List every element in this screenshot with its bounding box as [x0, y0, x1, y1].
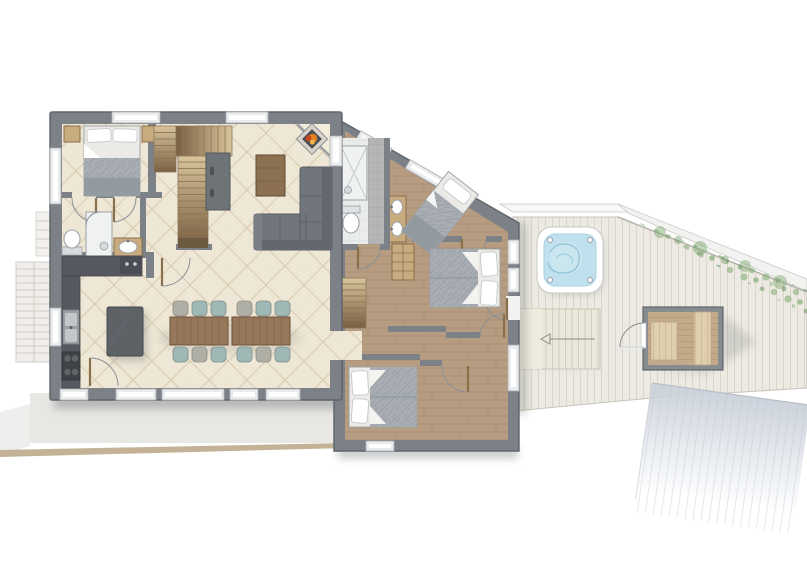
sideboard — [256, 155, 285, 196]
dining-chair — [173, 347, 188, 362]
master-bed — [84, 126, 140, 196]
window — [112, 112, 160, 123]
shower-head-icon — [100, 242, 108, 250]
deck — [500, 204, 807, 534]
main-building — [50, 112, 342, 400]
dining-chair — [237, 301, 252, 316]
hot-tub-jet — [588, 238, 593, 243]
window — [226, 112, 268, 123]
hot-tub-jet — [588, 278, 593, 283]
floor-plan-drawing — [0, 0, 807, 575]
bathroom-sink — [114, 238, 142, 256]
hot-tub — [537, 227, 603, 293]
window — [162, 389, 224, 400]
bathroom-floor-gray — [368, 138, 384, 244]
bed-double-lower — [349, 367, 417, 427]
window — [266, 389, 300, 400]
dining-table — [170, 317, 228, 345]
window — [508, 345, 519, 391]
stair-landing — [178, 238, 208, 248]
sofa-back-cushion — [254, 240, 332, 250]
toilet — [342, 206, 360, 233]
window — [50, 308, 61, 346]
floor-plan — [0, 0, 807, 575]
outdoor-stairs-left — [16, 262, 52, 362]
dining-chair — [256, 347, 271, 362]
kitchen-island — [107, 307, 143, 356]
dining-chair — [275, 301, 290, 316]
dining-table — [232, 317, 290, 345]
dining-chair — [211, 347, 226, 362]
window — [230, 389, 258, 400]
roof-edge-top — [500, 204, 636, 212]
wing-bathroom — [340, 138, 384, 244]
dining-chair — [275, 347, 290, 362]
dining-chair — [211, 301, 226, 316]
shower-drain-icon — [345, 187, 352, 194]
toilet — [62, 230, 82, 255]
nightstand — [64, 126, 80, 142]
dining-chair — [192, 301, 207, 316]
sofa-back-cushion — [322, 167, 332, 250]
stove — [62, 352, 80, 380]
dining-chair — [192, 347, 207, 362]
wing — [334, 117, 520, 451]
sofa-armrest — [254, 214, 262, 250]
lower-terrace-pad — [634, 383, 807, 534]
terrace-edge — [0, 443, 347, 457]
wing-stairs — [340, 278, 366, 328]
kitchen-sink — [63, 310, 79, 344]
bed-double-middle — [430, 249, 500, 307]
window — [508, 240, 519, 264]
dining-chair — [256, 301, 271, 316]
wardrobe — [392, 244, 414, 280]
shower — [341, 146, 367, 200]
sauna-bench — [694, 312, 711, 365]
shower — [86, 212, 112, 256]
window — [330, 136, 342, 166]
hot-tub-jet — [548, 238, 553, 243]
media-cabinet — [206, 153, 230, 210]
window — [366, 441, 394, 451]
dining-chair — [173, 301, 188, 316]
connector-floor — [330, 331, 362, 360]
terrace-corner — [0, 404, 30, 455]
window — [508, 268, 519, 292]
sauna-bench — [651, 322, 677, 360]
hot-tub-jet — [548, 278, 553, 283]
lightwell-panel — [36, 212, 50, 256]
counter-module — [120, 256, 142, 274]
window — [50, 148, 61, 204]
window — [116, 389, 156, 400]
vanity-sinks — [388, 196, 406, 242]
window — [60, 389, 88, 400]
dining-chair — [237, 347, 252, 362]
